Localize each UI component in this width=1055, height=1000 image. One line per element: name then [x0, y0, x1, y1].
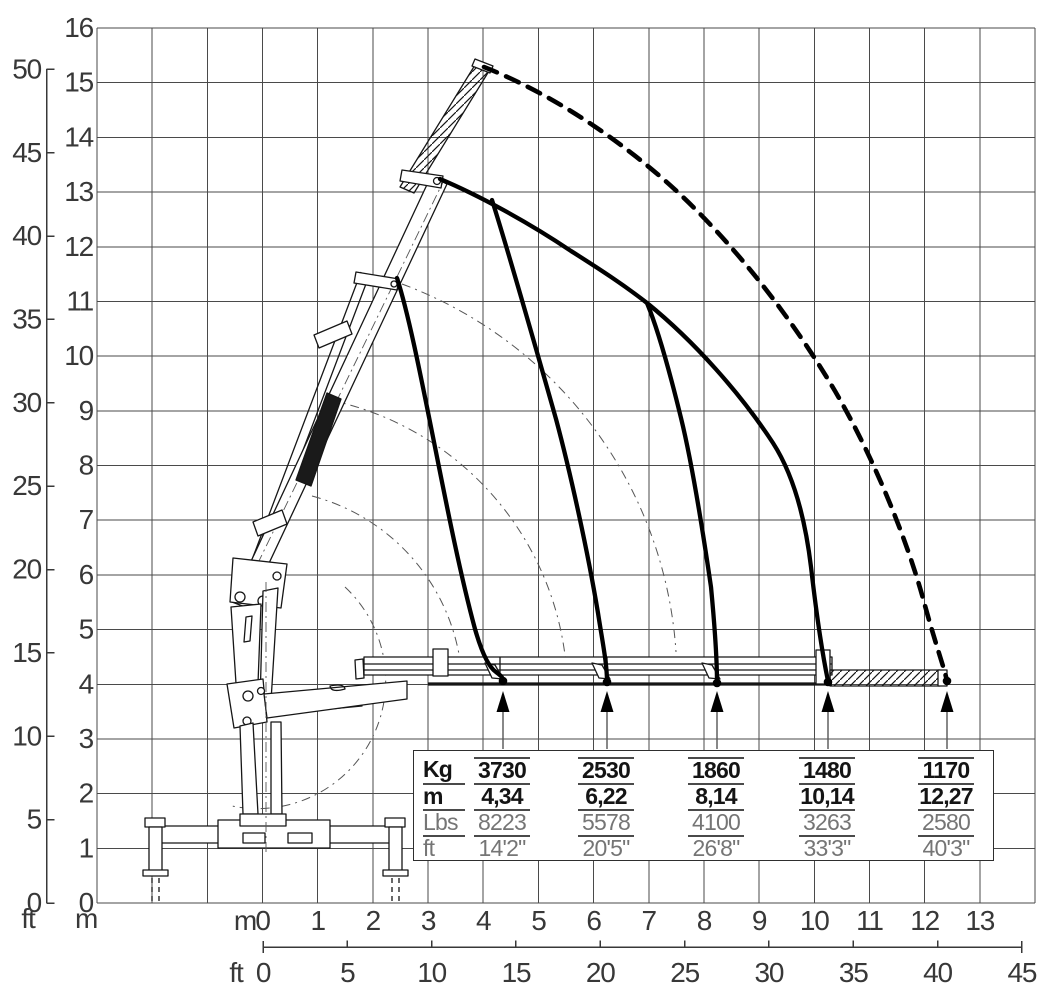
- bottom-m-tick-label: 6: [586, 905, 601, 936]
- left-m-tick-label: 4: [79, 668, 94, 699]
- left-m-tick-label: 13: [64, 176, 93, 207]
- load-table: KgmLbsft37304,34822314'2"25306,22557820'…: [413, 750, 994, 861]
- row-label-m: m: [423, 783, 465, 809]
- left-m-tick-label: 2: [79, 778, 94, 809]
- row-label-kg: Kg: [423, 757, 465, 783]
- load-value-lbs: 4100: [688, 809, 744, 835]
- knee-pin-1: [243, 691, 253, 701]
- left-ft-tick-label: 50: [12, 53, 41, 84]
- left-ft-tick-label: 20: [12, 554, 41, 585]
- curve-endpoint-dot: [713, 679, 722, 688]
- load-table-column: 18608,14410026'8": [688, 757, 744, 861]
- left-m-axis-unit: m: [75, 903, 97, 934]
- outreach-arrows: [497, 677, 954, 749]
- left-m-tick-label: 7: [79, 504, 94, 535]
- load-table-column: 25306,22557820'5": [578, 757, 634, 861]
- crane-load-diagram: 5045403530252015105016151413121110987654…: [0, 0, 1055, 1000]
- load-value-ft: 40'3": [918, 835, 974, 861]
- curve-endpoint-dot: [603, 678, 612, 687]
- load-curve-envelope: [440, 179, 828, 681]
- bottom-ft-tick-label: 30: [755, 957, 784, 988]
- main-boom-raised: [232, 176, 447, 608]
- bottom-ft-tick-label: 45: [1008, 957, 1037, 988]
- left-m-tick-label: 8: [79, 450, 94, 481]
- lower-cylinder: [271, 722, 282, 814]
- up-arrow-icon: [497, 691, 510, 712]
- left-m-tick-label: 16: [64, 12, 93, 43]
- load-table-column: 37304,34822314'2": [474, 757, 530, 861]
- bottom-m-tick-label: 2: [366, 905, 381, 936]
- knuckle-pin-3: [273, 572, 281, 580]
- bottom-ft-tick-label: 10: [417, 957, 446, 988]
- load-curve-2: [492, 200, 607, 682]
- load-table-row-labels: KgmLbsft: [423, 757, 465, 861]
- section-block: [433, 649, 448, 676]
- load-value-lbs: 5578: [578, 809, 634, 835]
- curve-endpoint-dot: [824, 678, 833, 687]
- bottom-m-tick-label: 7: [642, 905, 657, 936]
- left-m-tick-label: 3: [79, 723, 94, 754]
- chassis-notch-2: [288, 833, 312, 843]
- bottom-m-tick-label: 1: [310, 905, 325, 936]
- left-ft-axis-unit: ft: [21, 903, 36, 934]
- left-m-tick-label: 11: [66, 285, 93, 316]
- up-arrow-icon: [711, 691, 724, 712]
- left-m-tick-label: 6: [79, 559, 94, 590]
- bottom-m-tick-label: 5: [531, 905, 546, 936]
- bottom-m-tick-label: 4: [476, 905, 491, 936]
- left-ft-tick-label: 45: [12, 137, 41, 168]
- left-ft-tick-label: 5: [27, 804, 42, 835]
- load-value-lbs: 8223: [474, 809, 530, 835]
- load-table-column: 148010,14326333'3": [799, 757, 855, 861]
- bottom-m-axis-unit: m: [234, 905, 256, 936]
- knuckle-pin-1: [235, 592, 245, 602]
- bottom-ft-tick-label: 35: [839, 957, 868, 988]
- left-ft-tick-label: 35: [12, 303, 41, 334]
- load-value-kg: 1170: [918, 757, 974, 783]
- bottom-ft-tick-label: 5: [340, 957, 355, 988]
- load-value-m: 12,27: [918, 783, 974, 809]
- left-m-tick-label: 10: [64, 340, 93, 371]
- load-value-m: 8,14: [688, 783, 744, 809]
- chassis-notch-1: [243, 833, 265, 843]
- left-m-tick-label: 1: [79, 832, 94, 863]
- load-value-m: 4,34: [474, 783, 530, 809]
- bottom-m-tick-label: 13: [965, 905, 994, 936]
- left-m-tick-label: 5: [79, 614, 94, 645]
- bottom-ft-tick-label: 20: [586, 957, 615, 988]
- load-value-kg: 3730: [474, 757, 530, 783]
- knee-pin-2: [258, 688, 265, 695]
- load-value-lbs: 2580: [918, 809, 974, 835]
- row-label-ft: ft: [423, 835, 465, 861]
- trajectory-arc-2: [330, 400, 566, 664]
- bottom-ft-tick-label: 40: [923, 957, 952, 988]
- load-curves: [397, 67, 947, 683]
- column-base-plate: [240, 814, 286, 826]
- load-table-column: 117012,27258040'3": [918, 757, 974, 861]
- left-ft-tick-label: 10: [12, 720, 41, 751]
- trajectory-arc-1: [402, 284, 676, 652]
- left-ft-tick-label: 40: [12, 220, 41, 251]
- lower-link: [240, 723, 258, 814]
- bottom-m-tick-label: 8: [697, 905, 712, 936]
- max-reach-dashed-curve: [484, 67, 947, 681]
- left-ft-tick-label: 25: [12, 470, 41, 501]
- row-label-lbs: Lbs: [423, 809, 465, 835]
- bottom-m-tick-label: 0: [255, 905, 270, 936]
- bottom-m-tick-label: 9: [752, 905, 767, 936]
- left-m-tick-label: 14: [64, 121, 93, 152]
- boom-sleeve: [296, 393, 341, 486]
- bottom-m-tick-label: 10: [800, 905, 829, 936]
- bottom-ft-tick-label: 15: [502, 957, 531, 988]
- load-value-ft: 33'3": [799, 835, 855, 861]
- bottom-m-tick-label: 11: [856, 905, 883, 936]
- left-ft-tick-label: 30: [12, 387, 41, 418]
- load-value-ft: 26'8": [688, 835, 744, 861]
- load-value-kg: 1860: [688, 757, 744, 783]
- bottom-m-tick-label: 12: [910, 905, 939, 936]
- load-value-lbs: 3263: [799, 809, 855, 835]
- load-value-kg: 2530: [578, 757, 634, 783]
- load-value-ft: 14'2": [474, 835, 530, 861]
- up-arrow-icon: [941, 691, 954, 712]
- horizontal-arm: [264, 681, 407, 718]
- up-arrow-icon: [822, 691, 835, 712]
- bottom-m-tick-label: 3: [421, 905, 436, 936]
- left-m-tick-label: 9: [79, 395, 94, 426]
- load-value-kg: 1480: [799, 757, 855, 783]
- boom-bracket: [314, 321, 352, 348]
- left-m-tick-label: 15: [64, 67, 93, 98]
- left-ft-tick-label: 15: [12, 637, 41, 668]
- bottom-ft-tick-label: 0: [256, 957, 271, 988]
- bottom-ft-tick-label: 25: [670, 957, 699, 988]
- curve-endpoint-dot: [499, 677, 508, 686]
- manual-extension-horizontal: [830, 670, 940, 686]
- up-arrow-icon: [601, 691, 614, 712]
- curve-endpoint-dot: [943, 677, 952, 686]
- sections-start-plate: [355, 659, 364, 679]
- load-value-m: 10,14: [799, 783, 855, 809]
- left-m-tick-label: 12: [64, 231, 93, 262]
- load-value-ft: 20'5": [578, 835, 634, 861]
- load-value-m: 6,22: [578, 783, 634, 809]
- bottom-ft-axis-unit: ft: [229, 957, 244, 988]
